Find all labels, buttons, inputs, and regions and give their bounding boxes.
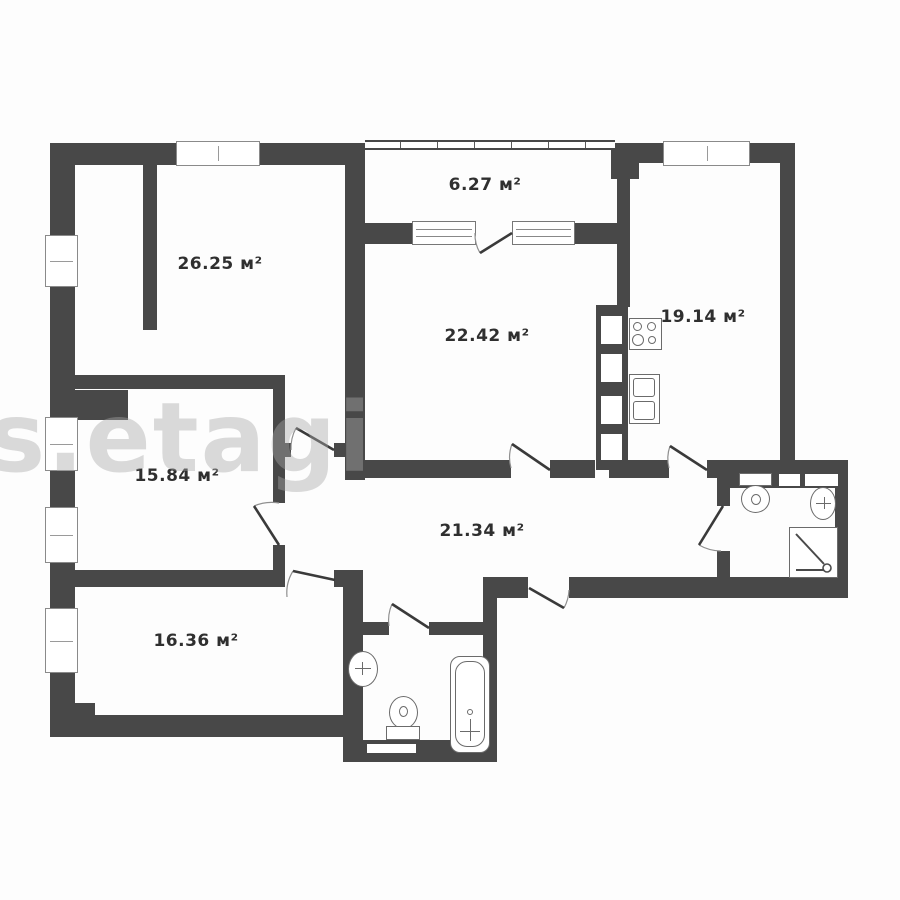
room-26-area-label: 26.25 м² [177, 254, 262, 274]
room-16-area-label: 16.36 м² [153, 631, 238, 651]
corridor-area-label: 21.34 м² [439, 521, 524, 541]
room-22-door-icon [506, 440, 554, 474]
toilet-icon [389, 696, 418, 729]
room-15-door-icon [248, 498, 284, 550]
wall-niche [805, 474, 838, 486]
window-icon [412, 221, 476, 245]
entrance-door-icon [524, 584, 574, 614]
window-icon [45, 608, 78, 673]
washbasin-icon [810, 487, 836, 520]
vent-shaft-cell [601, 316, 622, 344]
room-22-area-label: 22.42 м² [444, 326, 529, 346]
wc-door-icon [694, 502, 728, 556]
kitchen-door-icon [664, 442, 712, 474]
window-icon [45, 507, 78, 563]
wall [717, 472, 730, 506]
wall [780, 158, 795, 463]
floor-plan: 6.27 м² 26.25 м² 22.42 м² 19.14 м² 15.84… [0, 0, 900, 900]
room-26-door-icon [286, 422, 340, 456]
wall [609, 460, 669, 478]
wall [52, 703, 95, 737]
kitchen-area-label: 19.14 м² [660, 307, 745, 327]
wall-niche [779, 474, 800, 486]
wall [345, 460, 511, 478]
window-icon [45, 235, 78, 287]
wall [50, 143, 178, 165]
room-15-area-label: 15.84 м² [134, 466, 219, 486]
room-16-door-icon [283, 566, 339, 602]
shower-tray-icon [789, 527, 838, 578]
balcony-door-icon [468, 228, 518, 260]
window-icon [45, 417, 78, 471]
wall [273, 375, 285, 503]
kitchen-sink-icon [629, 374, 660, 424]
window-icon [176, 141, 260, 166]
window-icon [512, 221, 575, 245]
wall [365, 223, 413, 244]
toilet-icon [741, 485, 770, 513]
pilaster [73, 390, 128, 420]
toilet-tank-icon [386, 726, 420, 740]
balcony-area-label: 6.27 м² [449, 175, 522, 195]
wall [569, 577, 848, 598]
bathroom-door-icon [384, 598, 434, 632]
wall [50, 570, 285, 587]
partition-wall [143, 163, 157, 330]
wall-niche [367, 744, 416, 753]
wall [55, 715, 362, 737]
wall [617, 143, 669, 163]
window-icon [663, 141, 750, 166]
washbasin-icon [348, 651, 378, 687]
wall [574, 223, 620, 244]
vent-shaft-cell [601, 396, 622, 424]
wall [50, 375, 285, 389]
balcony-glazing-icon [365, 140, 615, 150]
wall [345, 143, 365, 480]
bathtub-icon [450, 656, 490, 753]
vent-shaft-cell [601, 354, 622, 382]
stove-icon [629, 318, 662, 350]
vent-shaft-cell [601, 434, 622, 460]
wall [550, 460, 595, 478]
